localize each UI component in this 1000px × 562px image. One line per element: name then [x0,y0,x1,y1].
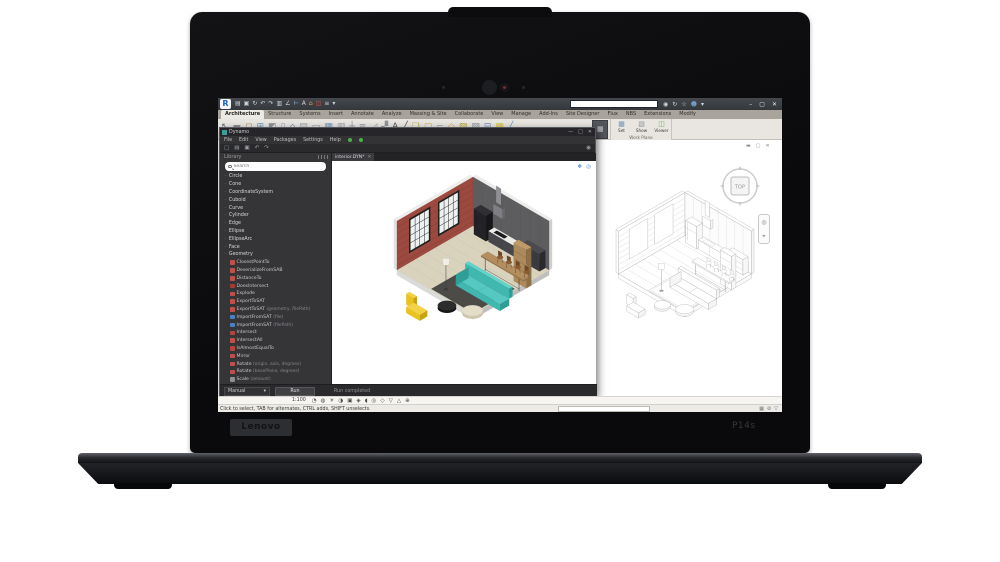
dynamo-close-button[interactable]: ✕ [588,129,592,135]
redo-icon[interactable]: ↷ [268,101,273,107]
run-button[interactable]: Run [275,387,315,396]
3d-view-icon[interactable]: ⌂ [309,101,313,107]
node-icon [230,276,235,281]
dynamo-window: Dynamo —□✕ FileEditViewPackagesSettingsH… [219,127,596,396]
dynamo-titlebar: Dynamo —□✕ [220,128,595,136]
preview-toggle-icons: ❖◎ [577,164,591,170]
temporary-view-properties-icon[interactable]: ▽ [389,398,393,404]
dropdown-caret-icon[interactable]: ▾ [701,101,704,108]
item-label: CoordinateSystem [229,190,273,195]
item-label: EllipseArc [229,237,252,242]
dynamo-window-controls: —□✕ [568,128,592,136]
model-badge: P14s [732,421,756,431]
view-minimize-icon[interactable]: ▬ [746,143,751,149]
laptop-hinge-edge [78,453,922,463]
node-icon [230,307,235,312]
notification-dot-icon[interactable] [359,138,363,142]
viewcube-top-label: TOP [734,185,745,191]
microphone-hole-icon [522,86,525,89]
item-args: (filePath) [273,323,293,328]
revit-logo-icon[interactable]: R [220,99,231,109]
webcam-indicator-icon [503,86,506,89]
rubber-foot [828,483,886,489]
ribbon-tab-flux[interactable]: Flux [603,110,621,119]
camera-view-icon[interactable]: ◎ [586,164,591,170]
detail-level-icon[interactable]: ◔ [312,398,317,404]
item-label: Curve [229,206,243,211]
item-label: Cylinder [229,213,249,218]
ribbon-tab-collaborate[interactable]: Collaborate [451,110,488,119]
item-label: IsAlmostEqualTo [237,346,274,351]
titlebar-icons: ◉↻☆☻▾ [663,98,704,110]
undo-icon[interactable]: ↶ [255,145,260,151]
menu-file[interactable]: File [224,138,232,143]
item-label: Ellipse [229,229,245,234]
view-restore-icon[interactable]: ▢ [756,143,761,149]
tree-guide: ‒ [224,252,227,257]
item-label: Intersect [237,330,257,335]
save-icon[interactable]: ▣ [244,101,250,107]
tree-guide: ‒ [224,213,227,218]
temporary-hide-icon[interactable]: ◖ [365,398,368,404]
view-close-icon[interactable]: ✕ [765,143,769,149]
library-category-ellipse[interactable]: ‒Ellipse [220,228,332,236]
sync-icon[interactable]: ↻ [252,101,257,107]
library-node-rotate[interactable]: Rotate(basePlane, degrees) [220,368,332,376]
library-node-intersect[interactable]: Intersect [220,329,332,337]
editable-only-icon[interactable]: ▦ [759,406,764,412]
ribbon-tab-annotate[interactable]: Annotate [347,110,378,119]
workspace-tabstrip: interior.DYN* ✕ [332,153,596,161]
dynamo-app-icon [222,130,227,135]
tree-guide: ‒ [224,245,227,250]
rendered-3d-preview[interactable] [372,167,574,339]
tree-guide: ‒ [224,237,227,242]
print-icon[interactable]: ▥ [276,101,282,107]
library-node-importfromsat[interactable]: ImportFromSAT(filePath) [220,321,332,329]
node-icon [230,299,235,304]
button-label: Show [632,128,651,133]
library-category-ellipsearc[interactable]: ‒EllipseArc [220,235,332,243]
library-node-rotate[interactable]: Rotate(origin, axis, degrees) [220,360,332,368]
node-icon [230,338,235,343]
item-label: ExportToSAT [237,307,265,312]
open-file-icon[interactable]: ▤ [234,145,239,151]
infocenter-search [570,100,658,108]
item-label: Cone [229,182,241,187]
ribbon-tab-extensions[interactable]: Extensions [640,110,675,119]
dynamo-library-panel: Library ‒Circle‒Cone‒CoordinateSystem‒Cu… [220,153,332,384]
maximize-button[interactable]: ▢ [759,101,765,108]
tree-guide: ‒ [224,198,227,203]
view-window-controls: ▬▢✕ [746,143,770,149]
node-icon [230,268,235,273]
dynamo-minimize-button[interactable]: — [568,129,573,135]
ribbon-tab-add-ins[interactable]: Add-Ins [535,110,562,119]
zoom-icon[interactable]: ⌖ [762,233,765,240]
minimize-button[interactable]: – [749,101,752,108]
constraints-icon[interactable]: ⊕ [405,398,410,404]
dynamo-canvas[interactable]: interior.DYN* ✕ ❖◎ [332,153,596,384]
undo-icon[interactable]: ↶ [260,101,265,107]
ribbon-tab-modify[interactable]: Modify [675,110,700,119]
library-node-distanceto[interactable]: DistanceTo [220,274,332,282]
item-label: ImportFromSAT [237,323,272,328]
item-label: Geometry [229,252,253,257]
work-plane-panel: ▦Set▧Show◫Viewer Work Plane [610,119,672,140]
library-category-cuboid[interactable]: ‒Cuboid [220,196,332,204]
item-label: ClosestPointTo [237,260,270,265]
laptop-base-front [78,463,922,484]
reveal-hidden-icon[interactable]: ◎ [372,398,377,404]
view-control-bar: 1:100 ◔◍☀◑▣◈◖◎◇▽△⊕ [218,396,782,404]
dynamo-title: Dynamo [229,130,249,135]
library-node-closestpointto[interactable]: ClosestPointTo [220,259,332,267]
library-category-cylinder[interactable]: ‒Cylinder [220,212,332,220]
tree-guide: ‒ [224,174,227,179]
view-scale[interactable]: 1:100 [292,398,306,403]
item-label: Cuboid [229,198,246,203]
status-hint-text: Click to select, TAB for alternates, CTR… [220,407,371,412]
refresh-icon[interactable]: ↻ [672,101,677,108]
item-label: Rotate [237,362,252,367]
node-icon [230,362,235,367]
microphone-hole-icon [442,86,445,89]
item-label: Face [229,245,240,250]
text-icon[interactable]: A [302,101,306,107]
library-category-geometry[interactable]: ‒Geometry [220,251,332,259]
library-category-circle[interactable]: ‒Circle [220,173,332,181]
item-label: Rotate [237,369,252,374]
ribbon-tab-structure[interactable]: Structure [264,110,295,119]
ribbon-tab-massing-site[interactable]: Massing & Site [406,110,451,119]
node-icon [230,323,235,328]
node-icon [230,331,235,336]
library-category-curve[interactable]: ‒Curve [220,204,332,212]
set-icon: ▦ [612,120,631,128]
tree-guide: ‒ [224,229,227,234]
open-icon[interactable]: ▤ [235,101,241,107]
quick-access-toolbar: ▤▣↻↶↷▥∠⊢A⌂◫≡▾ [235,98,335,110]
library-category-coordinatesystem[interactable]: ‒CoordinateSystem [220,189,332,197]
ribbon-tab-bar: ArchitectureStructureSystemsInsertAnnota… [218,110,782,119]
search-icon [228,165,232,169]
photo-background: R ▤▣↻↶↷▥∠⊢A⌂◫≡▾ ◉↻☆☻▾ –▢✕ ArchitectureSt… [0,0,1000,562]
ribbon-tab-view[interactable]: View [487,110,507,119]
node-icon [230,354,235,359]
menu-packages[interactable]: Packages [274,138,296,143]
node-icon [230,315,235,320]
item-label: Edge [229,221,241,226]
ribbon-tab-insert[interactable]: Insert [325,110,347,119]
laptop-base [78,453,922,490]
library-tree: ‒Circle‒Cone‒CoordinateSystem‒Cuboid‒Cur… [220,173,332,384]
signin-user-icon[interactable]: ☻ [691,101,697,108]
set-workplane-button[interactable]: ▦Set [612,120,631,133]
library-node-deserializefromsab[interactable]: DeserializeFromSAB [220,267,332,275]
item-args: (amount) [250,377,270,382]
crop-view-icon[interactable]: ▣ [347,398,352,404]
viewer-icon: ◫ [652,120,671,128]
crop-region-visible-icon[interactable]: ◈ [356,398,360,404]
navigation-bar[interactable]: ◎⌖ [758,214,770,244]
library-node-exporttosat[interactable]: ExportToSAT(geometry, filePath) [220,306,332,314]
library-pager-icon[interactable] [318,155,329,159]
geometry-preview-icon[interactable]: ❖ [577,164,582,170]
item-label: Circle [229,174,242,179]
filter-icon[interactable]: ▽ [774,406,778,412]
workspace-tab[interactable]: interior.DYN* ✕ [332,153,374,161]
library-node-isalmostequalto[interactable]: IsAlmostEqualTo [220,345,332,353]
lenovo-logo: Lenovo [230,419,292,436]
section-icon[interactable]: ◫ [316,101,322,107]
menu-settings[interactable]: Settings [303,138,323,143]
item-args: (file) [273,315,283,320]
item-label: DistanceTo [237,276,262,281]
redo-icon[interactable]: ↷ [264,145,269,151]
button-label: Set [612,128,631,133]
webcam-bump [448,7,552,17]
measure-icon[interactable]: ∠ [285,101,290,107]
aligned-dimension-icon[interactable]: ⊢ [294,101,299,107]
tree-guide: ‒ [224,206,227,211]
ribbon-tab-analyze[interactable]: Analyze [378,110,406,119]
tree-guide: ‒ [224,190,227,195]
run-status-text: Run completed [334,389,370,394]
dynamo-toolbar: ▢▤▣↶↷ [220,144,595,153]
ribbon-tab-nbs[interactable]: NBS [622,110,640,119]
rubber-foot [114,483,172,489]
library-node-importfromsat[interactable]: ImportFromSAT(file) [220,313,332,321]
save-file-icon[interactable]: ▣ [244,145,249,151]
library-node-explode[interactable]: Explode [220,290,332,298]
item-label: Explode [237,291,255,296]
ribbon-tab-systems[interactable]: Systems [295,110,324,119]
item-label: ExportToSAT [237,299,265,304]
library-category-cone[interactable]: ‒Cone [220,181,332,189]
library-node-mirror[interactable]: Mirror [220,352,332,360]
item-label: DeserializeFromSAB [237,268,283,273]
exclude-options-icon[interactable]: ⊘ [767,406,771,412]
ribbon-tab-manage[interactable]: Manage [507,110,535,119]
favorites-star-icon[interactable]: ☆ [681,101,686,108]
item-label: ImportFromSAT [237,315,272,320]
tree-guide: ‒ [224,182,227,187]
library-node-intersectall[interactable]: IntersectAll [220,337,332,345]
item-args: (origin, axis, degrees) [253,362,301,367]
laptop-lid: R ▤▣↻↶↷▥∠⊢A⌂◫≡▾ ◉↻☆☻▾ –▢✕ ArchitectureSt… [190,12,810,453]
sun-path-icon[interactable]: ☀ [329,398,334,404]
show-workplane-button[interactable]: ▧Show [632,120,651,133]
dynamo-menubar: FileEditViewPackagesSettingsHelp [220,136,595,144]
item-args: (geometry, filePath) [266,307,310,312]
library-category-face[interactable]: ‒Face [220,243,332,251]
grid-flyout-icon: ▦ [597,125,604,133]
revit-statusbar: Click to select, TAB for alternates, CTR… [218,404,782,412]
ribbon-tab-architecture[interactable]: Architecture [221,110,264,119]
workplane-viewer-button[interactable]: ◫Viewer [652,120,671,133]
steering-wheel-icon[interactable]: ◎ [761,219,766,226]
library-search-input[interactable] [232,164,327,169]
node-icon [230,292,235,297]
item-label: Scale [237,377,249,382]
viewcube[interactable]: TOP [718,164,762,208]
revit-titlebar: R ▤▣↻↶↷▥∠⊢A⌂◫≡▾ ◉↻☆☻▾ –▢✕ [218,98,782,110]
library-node-exporttosat[interactable]: ExportToSAT [220,298,332,306]
search-help-icon[interactable]: ◉ [663,101,668,108]
menu-help[interactable]: Help [330,138,341,143]
run-mode-select[interactable]: Manual▾ [224,387,270,396]
node-icon [230,370,235,375]
item-args: (basePlane, degrees) [253,369,299,374]
node-icon [230,284,235,289]
button-label: Viewer [652,128,671,133]
shadows-icon[interactable]: ◑ [338,398,343,404]
chevron-down-icon: ▾ [264,389,266,394]
screen: R ▤▣↻↶↷▥∠⊢A⌂◫≡▾ ◉↻☆☻▾ –▢✕ ArchitectureSt… [218,98,782,412]
analytical-model-icon[interactable]: △ [397,398,401,404]
dynamo-maximize-button[interactable]: □ [578,129,583,135]
item-label: Mirror [237,354,251,359]
library-category-edge[interactable]: ‒Edge [220,220,332,228]
item-label: IntersectAll [237,338,263,343]
node-icon [230,260,235,265]
node-icon [230,346,235,351]
close-button[interactable]: ✕ [772,101,777,108]
library-node-doesintersect[interactable]: DoesIntersect [220,282,332,290]
worksets-box[interactable] [558,406,650,412]
menu-edit[interactable]: Edit [239,138,248,143]
revit-window-controls: –▢✕ [749,98,777,110]
ribbon-tab-site-designer[interactable]: Site Designer [562,110,604,119]
node-icon [230,377,235,382]
menu-view[interactable]: View [255,138,266,143]
library-node-scale[interactable]: Scale(amount) [220,376,332,384]
visual-style-icon[interactable]: ◍ [321,398,326,404]
close-tab-icon[interactable]: ✕ [368,155,372,160]
thin-lines-icon[interactable]: ≡ [324,101,329,107]
webcam-shutter-icon [482,80,497,95]
library-search [225,162,326,171]
notification-dot-icon[interactable] [348,138,352,142]
library-title: Library [224,154,241,160]
new-file-icon[interactable]: ▢ [224,145,229,151]
laptop: R ▤▣↻↶↷▥∠⊢A⌂◫≡▾ ◉↻☆☻▾ –▢✕ ArchitectureSt… [0,0,1000,562]
ui-menu-icon[interactable]: ▾ [332,101,335,107]
tree-guide: ‒ [224,221,227,226]
export-workspace-image-icon[interactable]: ◉ [586,145,591,151]
show-icon: ▧ [632,120,651,128]
worksharing-display-icon[interactable]: ◇ [380,398,384,404]
item-label: DoesIntersect [237,284,269,289]
